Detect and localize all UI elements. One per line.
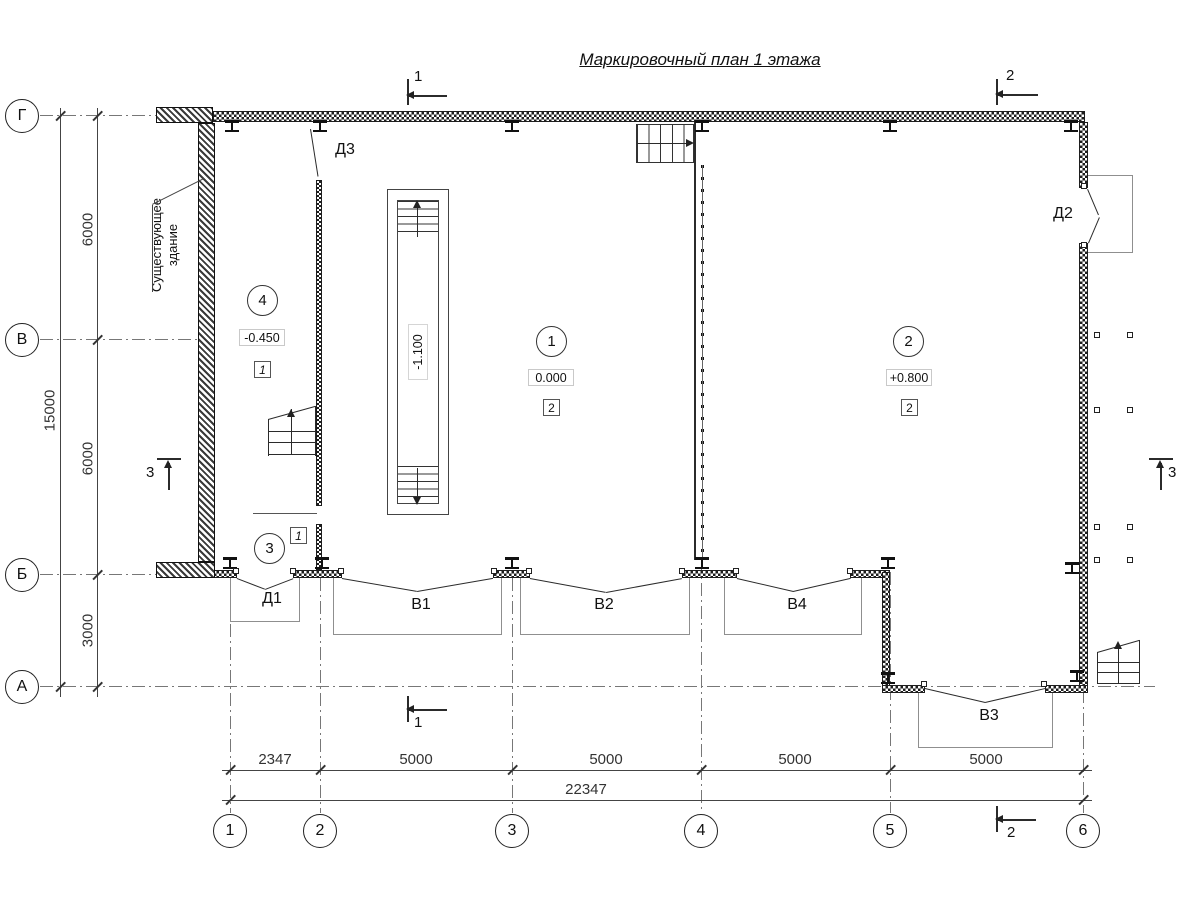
partition-room4-upper <box>316 180 322 506</box>
room-number: 1 <box>547 333 555 350</box>
ramp-arrow-down-stem <box>417 468 418 498</box>
room3-number: 3 <box>254 533 285 564</box>
annotation-underline <box>152 205 153 292</box>
jamb-square <box>679 568 685 574</box>
column-top-2 <box>313 120 327 132</box>
wall-top <box>213 111 1085 122</box>
arrow-up-icon <box>287 409 295 417</box>
column-ext-a6 <box>1070 670 1084 682</box>
axis-bubble-3: 3 <box>495 814 529 848</box>
footing-square <box>1094 332 1100 338</box>
dim-line-bottom-total <box>222 800 1092 801</box>
axis-bubble-b: Б <box>5 558 39 592</box>
dim-5000-3: 5000 <box>765 751 825 768</box>
axis-bubble-2: 2 <box>303 814 337 848</box>
jamb-square <box>233 568 239 574</box>
column-ext-a5 <box>881 672 895 684</box>
room2-number: 2 <box>893 326 924 357</box>
axis-bubble-a: А <box>5 670 39 704</box>
ramp-arrow-up-stem <box>417 207 418 237</box>
axis-line-v <box>40 339 215 340</box>
ramp-elevation-label: -1.100 <box>408 324 428 380</box>
axis-label: В <box>17 331 28 349</box>
dim-22347: 22347 <box>551 781 621 798</box>
label-v3: В3 <box>971 707 1007 725</box>
partition-axis4 <box>694 122 696 560</box>
jamb-square <box>526 568 532 574</box>
wall-ext-bottom1 <box>882 685 925 693</box>
section-arrow-icon <box>1156 460 1164 468</box>
column-b-5 <box>881 557 895 569</box>
room-type: 1 <box>259 363 266 377</box>
axis-line-4 <box>701 560 702 813</box>
arrow-up-icon <box>413 200 421 208</box>
dim-line-left-chain <box>97 108 98 697</box>
arrow-right-icon <box>686 139 694 147</box>
arrow-up-icon <box>1114 641 1122 649</box>
label-v2: В2 <box>586 596 622 614</box>
stair-top-midline <box>637 143 689 144</box>
column-b-6 <box>1065 562 1079 574</box>
stair-room3-left <box>268 419 269 456</box>
label-d3: Д3 <box>328 141 362 159</box>
porch-d2 <box>1087 175 1133 253</box>
room-number: 3 <box>265 540 273 557</box>
annotation-line2: здание <box>165 224 180 266</box>
axis-bubble-5: 5 <box>873 814 907 848</box>
axis-label: 3 <box>508 822 517 840</box>
elevation-value: 0.000 <box>535 371 566 385</box>
section1-bottom-stem <box>409 709 447 711</box>
axis-bubble-6: 6 <box>1066 814 1100 848</box>
drawing-sheet: Маркировочный план 1 этажа 2347 5000 500… <box>0 0 1200 900</box>
wall-right-upper <box>1079 122 1088 188</box>
footing-square <box>1127 407 1133 413</box>
elevation-value: +0.800 <box>890 371 929 385</box>
axis-label: 5 <box>886 822 895 840</box>
wall-ext-bottom2 <box>1045 685 1088 693</box>
wall-b-seg2 <box>293 570 342 578</box>
column-top-5 <box>883 120 897 132</box>
room4-elevation: -0.450 <box>239 329 285 346</box>
wall-right-lower <box>1079 243 1088 693</box>
section-arrow-icon <box>164 460 172 468</box>
axis-label: Б <box>17 566 28 584</box>
wall-existing-stub-top <box>156 107 213 123</box>
footing-square <box>1094 407 1100 413</box>
jamb-square <box>290 568 296 574</box>
column-b-4 <box>695 557 709 569</box>
footing-square <box>1127 524 1133 530</box>
axis-line-3 <box>512 578 513 813</box>
partition-axis4-dotted <box>701 165 704 560</box>
jamb-square <box>1081 183 1087 189</box>
column-top-6 <box>1064 120 1078 132</box>
footing-square <box>1127 557 1133 563</box>
ramp-elevation-value: -1.100 <box>411 334 425 369</box>
section-arrow-icon <box>406 705 414 713</box>
section-arrow-icon <box>406 91 414 99</box>
room-type: 1 <box>295 529 302 543</box>
section1-top-label: 1 <box>414 68 422 85</box>
room3-type-box: 1 <box>290 527 307 544</box>
axis-line-6 <box>1083 690 1084 813</box>
column-top-1 <box>225 120 239 132</box>
axis-line-a <box>40 686 1155 687</box>
axis-bubble-4: 4 <box>684 814 718 848</box>
section3-right-label: 3 <box>1168 464 1176 481</box>
jamb-square <box>847 568 853 574</box>
axis-label: 6 <box>1079 822 1088 840</box>
room2-type-box: 2 <box>901 399 918 416</box>
column-top-4 <box>695 120 709 132</box>
axis-bubble-1: 1 <box>213 814 247 848</box>
footing-square <box>1094 524 1100 530</box>
dim-line-left-total <box>60 108 61 697</box>
existing-building-note: Существующее здание <box>149 193 183 297</box>
elevation-value: -0.450 <box>244 331 279 345</box>
axis-label: 2 <box>316 822 325 840</box>
room-type: 2 <box>906 401 913 415</box>
wall-b-seg3 <box>493 570 530 578</box>
wall-existing-stub-bottom <box>156 562 215 578</box>
axis-line-2 <box>320 578 321 813</box>
room1-elevation: 0.000 <box>528 369 574 386</box>
axis-label: Г <box>18 107 27 125</box>
footing-square <box>1094 557 1100 563</box>
dim-5000-1: 5000 <box>386 751 446 768</box>
section2-top-label: 2 <box>1006 67 1014 84</box>
axis-bubble-g: Г <box>5 99 39 133</box>
section1-bottom-label: 1 <box>414 714 422 731</box>
stair-room3-right <box>315 406 316 456</box>
section-arrow-icon <box>995 815 1003 823</box>
room-type: 2 <box>548 401 555 415</box>
drawing-title: Маркировочный план 1 этажа <box>540 50 860 70</box>
room-number: 2 <box>904 333 912 350</box>
label-d1: Д1 <box>255 590 289 608</box>
dim-5000-4: 5000 <box>956 751 1016 768</box>
jamb-square <box>1081 242 1087 248</box>
jamb-square <box>491 568 497 574</box>
axis-label: А <box>17 678 28 696</box>
partition-door-line <box>253 513 317 514</box>
wall-b-seg4 <box>682 570 737 578</box>
label-d2: Д2 <box>1046 205 1080 223</box>
dim-6000-top: 6000 <box>80 205 97 255</box>
dim-3000: 3000 <box>80 606 97 656</box>
jamb-square <box>338 568 344 574</box>
column-b-3 <box>505 557 519 569</box>
column-b-2 <box>315 557 329 569</box>
section3-left-label: 3 <box>146 464 154 481</box>
axis-label: 4 <box>697 822 706 840</box>
stair-ext-mid <box>1118 646 1119 684</box>
axis-bubble-v: В <box>5 323 39 357</box>
room-number: 4 <box>258 292 266 309</box>
dim-15000: 15000 <box>42 381 59 441</box>
section2-bottom-stem <box>998 819 1036 821</box>
stair-ext-right <box>1139 640 1140 684</box>
room1-type-box: 2 <box>543 399 560 416</box>
section-arrow-icon <box>995 90 1003 98</box>
wall-existing-left <box>198 123 215 562</box>
section2-top-stem <box>998 94 1038 96</box>
jamb-square <box>733 568 739 574</box>
stair-ext-left <box>1097 652 1098 684</box>
section2-bottom-label: 2 <box>1007 824 1015 841</box>
dim-6000-mid: 6000 <box>80 434 97 484</box>
column-top-3 <box>505 120 519 132</box>
dim-5000-2: 5000 <box>576 751 636 768</box>
door-d3-leaf <box>310 129 318 177</box>
room2-elevation: +0.800 <box>886 369 932 386</box>
jamb-square <box>921 681 927 687</box>
room4-type-box: 1 <box>254 361 271 378</box>
arrow-down-icon <box>413 497 421 505</box>
room1-number: 1 <box>536 326 567 357</box>
section1-top-stem <box>409 95 447 97</box>
room4-number: 4 <box>247 285 278 316</box>
dim-line-bottom-chain <box>222 770 1092 771</box>
jamb-square <box>1041 681 1047 687</box>
footing-square <box>1127 332 1133 338</box>
label-v4: В4 <box>779 596 815 614</box>
label-v1: В1 <box>403 596 439 614</box>
axis-label: 1 <box>226 822 235 840</box>
dim-2347: 2347 <box>245 751 305 768</box>
